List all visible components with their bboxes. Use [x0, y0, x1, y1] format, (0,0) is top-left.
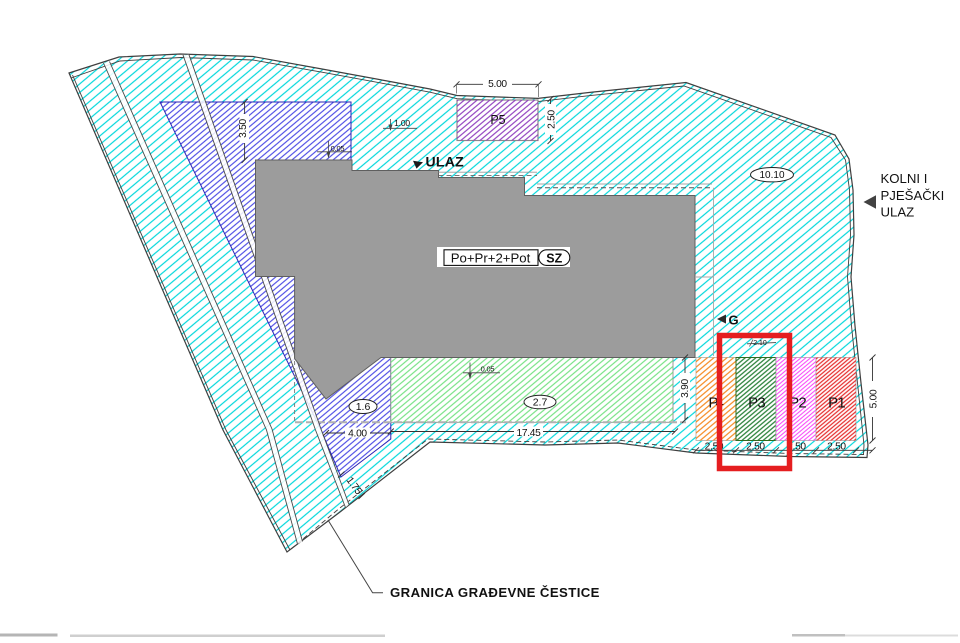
svg-text:2.50: 2.50 — [746, 442, 765, 453]
svg-text:P1: P1 — [828, 395, 845, 412]
svg-text:3.90: 3.90 — [680, 379, 691, 398]
svg-text:17.45: 17.45 — [517, 428, 542, 439]
svg-text:2.50: 2.50 — [547, 110, 558, 129]
svg-text:P3: P3 — [748, 395, 765, 412]
svg-text:P5: P5 — [490, 113, 505, 127]
svg-text:ULAZ: ULAZ — [426, 154, 465, 170]
svg-text:1.00: 1.00 — [394, 118, 410, 128]
svg-text:4.00: 4.00 — [348, 429, 367, 440]
svg-text:2.50: 2.50 — [827, 442, 846, 453]
svg-text:5.00: 5.00 — [488, 79, 507, 90]
svg-text:SZ: SZ — [546, 251, 562, 265]
svg-text:2.7: 2.7 — [533, 397, 548, 409]
svg-text:Po+Pr+2+Pot: Po+Pr+2+Pot — [451, 250, 531, 265]
svg-text:1.6: 1.6 — [356, 401, 371, 413]
svg-text:3.50: 3.50 — [238, 119, 249, 138]
svg-text:PJEŠAČKI: PJEŠAČKI — [881, 188, 945, 203]
svg-text:ULAZ: ULAZ — [881, 205, 915, 220]
svg-text:GRANICA GRAĐEVNE ČESTICE: GRANICA GRAĐEVNE ČESTICE — [390, 585, 600, 600]
svg-text:KOLNI I: KOLNI I — [881, 171, 928, 186]
svg-text:10.10: 10.10 — [759, 170, 784, 181]
svg-text:5.00: 5.00 — [869, 389, 880, 408]
svg-text:0.05: 0.05 — [481, 365, 495, 374]
svg-text:G: G — [729, 313, 739, 328]
